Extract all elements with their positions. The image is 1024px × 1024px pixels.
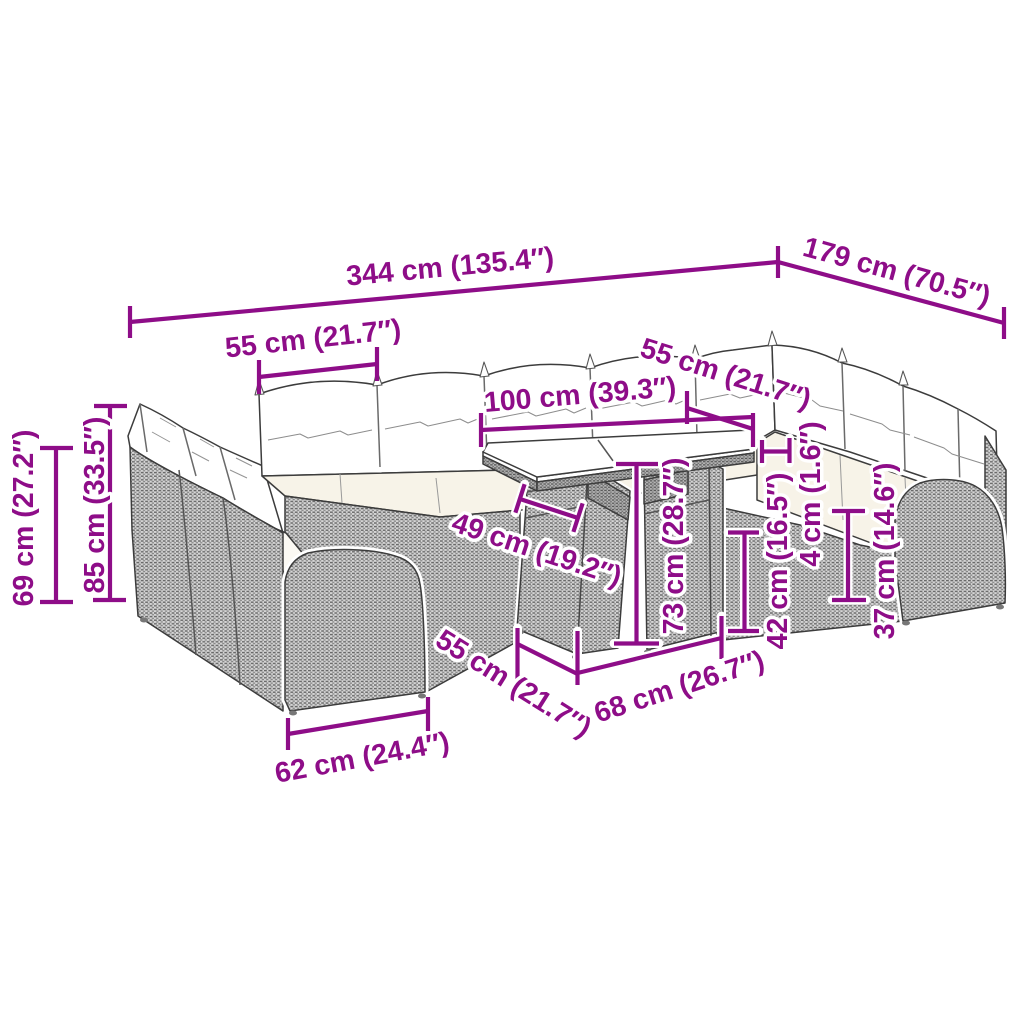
svg-text:42 cm (16.5″): 42 cm (16.5″) <box>762 473 794 650</box>
svg-text:73 cm (28.7″): 73 cm (28.7″) <box>658 458 690 635</box>
svg-text:85 cm (33.5″): 85 cm (33.5″) <box>79 417 111 594</box>
svg-text:68 cm (26.7″): 68 cm (26.7″) <box>590 644 768 729</box>
svg-text:4 cm (1.6″): 4 cm (1.6″) <box>795 421 827 566</box>
svg-text:69 cm (27.2″): 69 cm (27.2″) <box>8 430 40 607</box>
svg-text:37 cm (14.6″): 37 cm (14.6″) <box>869 463 901 640</box>
